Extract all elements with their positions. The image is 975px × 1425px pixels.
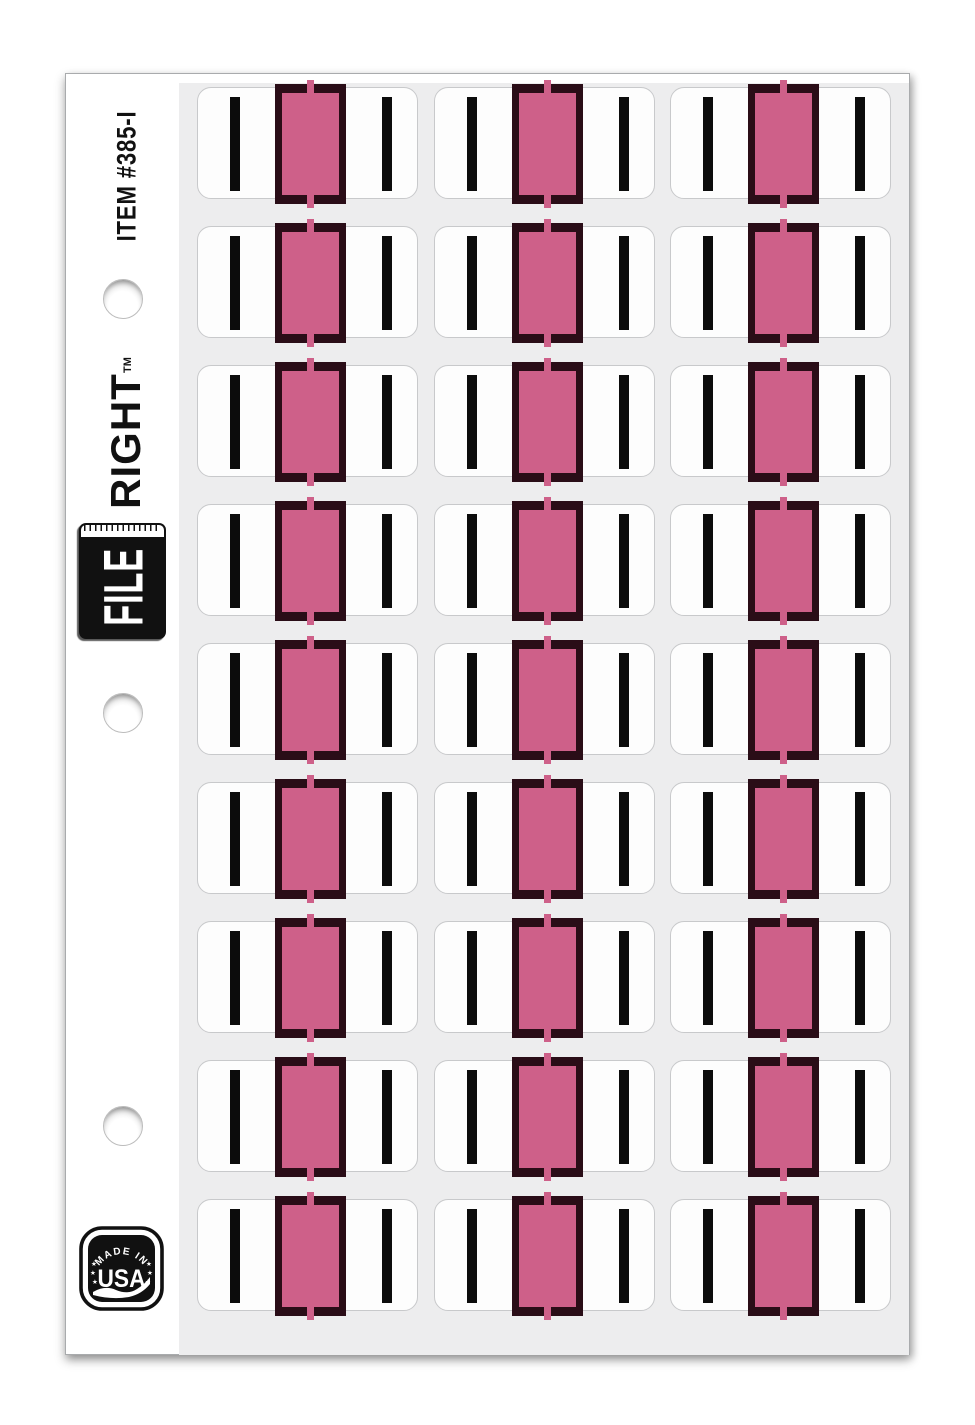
- letter-i-left-bar: [467, 514, 477, 608]
- label-sticker: [197, 87, 418, 199]
- label-sticker: [670, 365, 891, 477]
- letter-i-right-bar: [382, 514, 392, 608]
- letter-i-left-bar: [703, 375, 713, 469]
- letter-i-left-bar: [703, 1209, 713, 1303]
- letter-i-left-bar: [467, 1209, 477, 1303]
- letter-i-right-bar: [619, 375, 629, 469]
- letter-i-right-bar: [382, 1070, 392, 1164]
- letter-i-right-bar: [855, 97, 865, 191]
- letter-i-right-bar: [619, 1209, 629, 1303]
- letter-i-right-bar: [619, 1070, 629, 1164]
- letter-i-left-bar: [703, 1070, 713, 1164]
- letter-i-left-bar: [703, 931, 713, 1025]
- center-notch: [307, 219, 314, 347]
- center-notch: [307, 1053, 314, 1181]
- center-notch: [780, 80, 787, 208]
- letter-i-left-bar: [230, 792, 240, 886]
- letter-i-left-bar: [467, 375, 477, 469]
- letter-i-right-bar: [855, 653, 865, 747]
- center-notch: [307, 775, 314, 903]
- letter-i-left-bar: [467, 236, 477, 330]
- label-sticker: [434, 1060, 655, 1172]
- center-notch: [307, 914, 314, 1042]
- letter-i-left-bar: [467, 792, 477, 886]
- letter-i-left-bar: [467, 97, 477, 191]
- label-sticker: [197, 782, 418, 894]
- label-sticker: [434, 782, 655, 894]
- letter-i-left-bar: [230, 514, 240, 608]
- label-sticker: [434, 87, 655, 199]
- letter-i-left-bar: [467, 931, 477, 1025]
- label-sticker: [197, 365, 418, 477]
- letter-i-left-bar: [703, 97, 713, 191]
- letter-i-left-bar: [703, 653, 713, 747]
- letter-i-right-bar: [382, 792, 392, 886]
- label-sticker: [670, 1060, 891, 1172]
- letter-i-right-bar: [855, 236, 865, 330]
- letter-i-left-bar: [230, 97, 240, 191]
- letter-i-right-bar: [619, 653, 629, 747]
- center-notch: [780, 914, 787, 1042]
- label-sticker: [434, 365, 655, 477]
- center-notch: [544, 1192, 551, 1320]
- letter-i-right-bar: [382, 97, 392, 191]
- letter-i-right-bar: [619, 931, 629, 1025]
- screenshot-stage: ITEM #385-I TM RIGHT FILE MADE IN USA ★★…: [0, 0, 975, 1425]
- letter-i-right-bar: [855, 375, 865, 469]
- label-sticker: [670, 921, 891, 1033]
- label-sticker: [670, 504, 891, 616]
- letter-i-left-bar: [230, 653, 240, 747]
- letter-i-left-bar: [467, 653, 477, 747]
- center-notch: [544, 80, 551, 208]
- center-notch: [544, 1053, 551, 1181]
- letter-i-left-bar: [703, 514, 713, 608]
- letter-i-left-bar: [230, 931, 240, 1025]
- label-sticker: [197, 643, 418, 755]
- letter-i-right-bar: [382, 653, 392, 747]
- letter-i-right-bar: [382, 375, 392, 469]
- letter-i-right-bar: [619, 514, 629, 608]
- center-notch: [544, 219, 551, 347]
- center-notch: [780, 1053, 787, 1181]
- letter-i-left-bar: [703, 236, 713, 330]
- center-notch: [780, 358, 787, 486]
- center-notch: [307, 80, 314, 208]
- label-sticker: [197, 1199, 418, 1311]
- center-notch: [544, 497, 551, 625]
- center-notch: [780, 775, 787, 903]
- letter-i-right-bar: [855, 792, 865, 886]
- letter-i-right-bar: [855, 1209, 865, 1303]
- letter-i-left-bar: [703, 792, 713, 886]
- label-sticker: [670, 87, 891, 199]
- label-sticker: [197, 921, 418, 1033]
- label-sticker: [670, 1199, 891, 1311]
- label-sticker: [434, 226, 655, 338]
- letter-i-right-bar: [382, 1209, 392, 1303]
- center-notch: [780, 219, 787, 347]
- labels-grid: [66, 74, 909, 1354]
- letter-i-right-bar: [382, 931, 392, 1025]
- center-notch: [544, 358, 551, 486]
- label-sticker: [670, 782, 891, 894]
- letter-i-right-bar: [619, 97, 629, 191]
- letter-i-right-bar: [619, 792, 629, 886]
- center-notch: [307, 636, 314, 764]
- center-notch: [544, 914, 551, 1042]
- center-notch: [780, 1192, 787, 1320]
- letter-i-left-bar: [230, 236, 240, 330]
- label-sticker: [197, 1060, 418, 1172]
- label-sticker: [197, 504, 418, 616]
- letter-i-right-bar: [382, 236, 392, 330]
- center-notch: [544, 636, 551, 764]
- label-sticker: [670, 643, 891, 755]
- letter-i-left-bar: [230, 1070, 240, 1164]
- letter-i-right-bar: [619, 236, 629, 330]
- label-sticker: [434, 1199, 655, 1311]
- letter-i-left-bar: [230, 375, 240, 469]
- label-sticker: [434, 504, 655, 616]
- letter-i-left-bar: [467, 1070, 477, 1164]
- center-notch: [780, 497, 787, 625]
- label-sticker: [670, 226, 891, 338]
- label-sticker: [434, 643, 655, 755]
- label-sticker: [434, 921, 655, 1033]
- letter-i-right-bar: [855, 1070, 865, 1164]
- label-sticker: [197, 226, 418, 338]
- center-notch: [544, 775, 551, 903]
- label-sheet-page: ITEM #385-I TM RIGHT FILE MADE IN USA ★★…: [65, 73, 910, 1355]
- center-notch: [307, 497, 314, 625]
- letter-i-right-bar: [855, 931, 865, 1025]
- center-notch: [780, 636, 787, 764]
- letter-i-left-bar: [230, 1209, 240, 1303]
- center-notch: [307, 358, 314, 486]
- letter-i-right-bar: [855, 514, 865, 608]
- center-notch: [307, 1192, 314, 1320]
